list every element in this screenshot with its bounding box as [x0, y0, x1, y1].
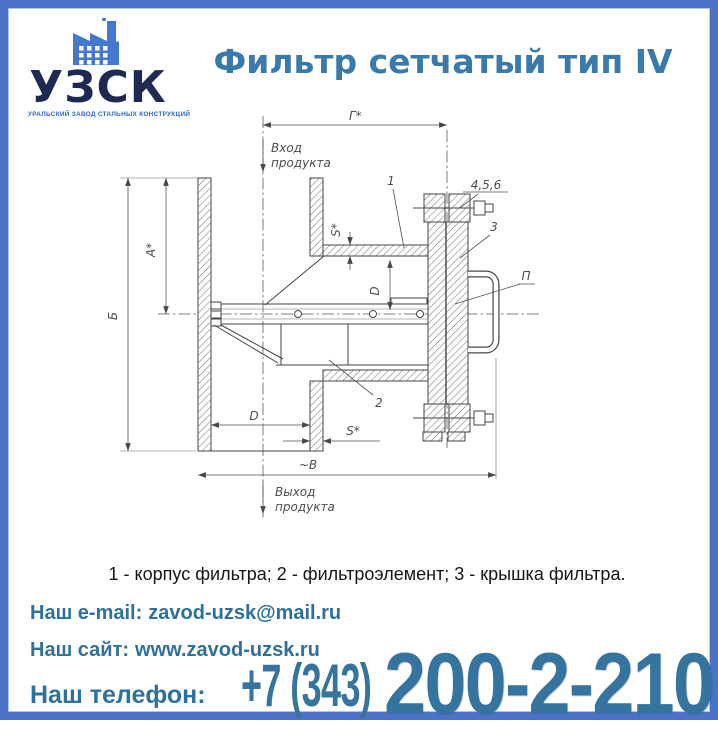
- callout-fasteners: 4,5,6: [471, 178, 502, 192]
- filter-element: [211, 298, 428, 365]
- callout-body: 1: [387, 174, 395, 188]
- dim-wall-bottom: S*: [346, 424, 360, 438]
- contact-email: Наш e-mail:zavod-uzsk@mail.ru: [30, 602, 341, 625]
- dim-bore: D: [249, 409, 258, 423]
- filter-body: [198, 178, 428, 451]
- site-label: Наш сайт:: [30, 639, 129, 661]
- svg-text:продукта: продукта: [275, 500, 335, 514]
- bolt-set-bottom: [413, 404, 493, 441]
- drawing-caption: 1 - корпус фильтра; 2 - фильтроэлемент; …: [8, 564, 718, 585]
- page-title: Фильтр сетчатый тип IV: [178, 42, 708, 81]
- technical-drawing: Г* А* Б D D S* S* ~В: [8, 103, 718, 553]
- phone-area-code: +7 (343): [241, 660, 371, 712]
- email-value: zavod-uzsk@mail.ru: [148, 602, 341, 624]
- outlet-label: Выход: [275, 485, 315, 499]
- email-label: Наш e-mail:: [30, 602, 142, 624]
- brand-name: УЗСК: [28, 68, 168, 108]
- callout-element: 2: [375, 396, 383, 410]
- inlet-label: Вход: [271, 141, 302, 155]
- dim-base-width: ~В: [299, 458, 317, 472]
- phone-label: Наш телефон:: [30, 681, 206, 710]
- svg-text:продукта: продукта: [271, 156, 331, 170]
- page-frame: УЗСК УРАЛЬСКИЙ ЗАВОД СТАЛЬНЫХ КОНСТРУКЦИ…: [0, 0, 718, 720]
- phone-number: 200-2-210: [384, 649, 713, 719]
- dim-wall-top: S*: [329, 223, 343, 237]
- dim-housing-bore: D: [368, 286, 382, 295]
- callout-handle: П: [521, 269, 530, 283]
- cover-handle: [468, 274, 496, 350]
- dim-total-height: Б: [106, 312, 120, 320]
- dim-inlet-height: А*: [144, 243, 158, 258]
- bolt-set-top: [413, 194, 493, 222]
- callout-cover: 3: [490, 220, 498, 234]
- factory-icon: [71, 18, 125, 68]
- filter-cover: [428, 222, 468, 404]
- dim-top-length: Г*: [349, 109, 362, 123]
